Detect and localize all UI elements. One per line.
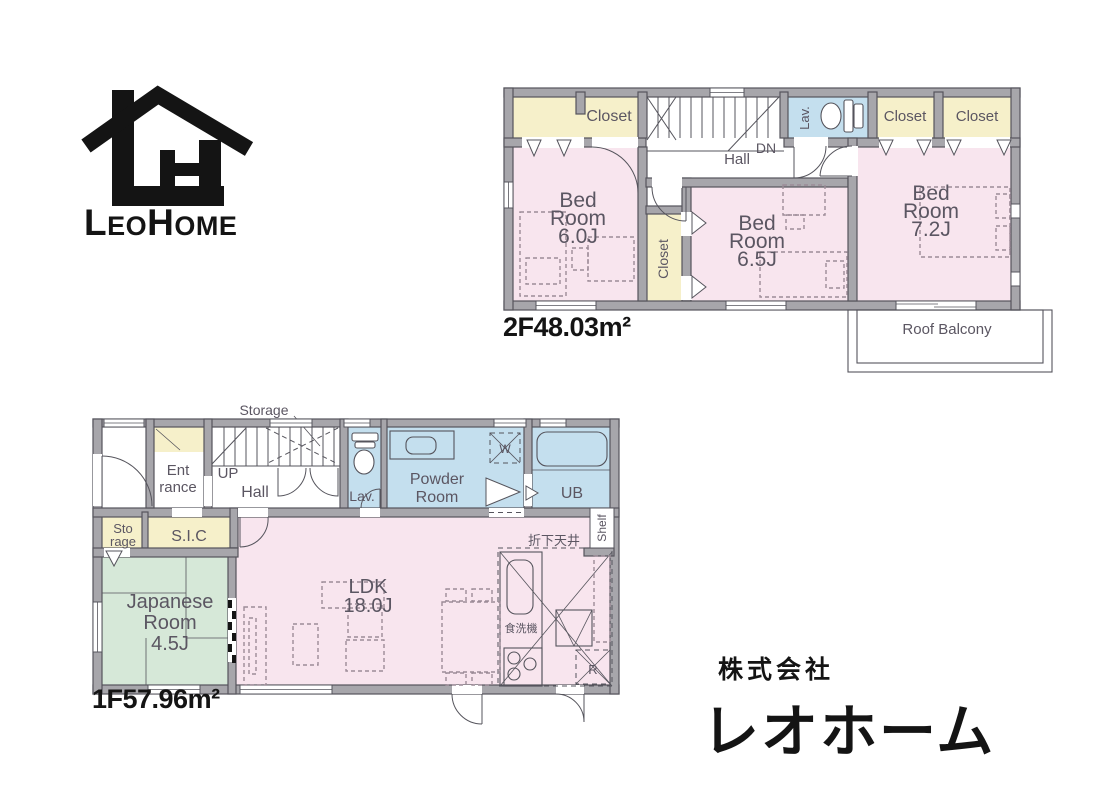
label-entrance-line1: Ent [167,462,190,479]
label-ldk-line2: 18.0J [344,595,393,617]
label-powder-line1: Powder [410,471,465,488]
label-fridge: R [588,662,597,677]
label-hall-2f: Hall [724,151,750,168]
label-shelf: Shelf [595,514,609,542]
label-japanese-line3: 4.5J [151,633,189,655]
floor1-area-label: 1F57.96m² [92,684,220,715]
label-japanese-line2: Room [143,612,196,634]
roof-balcony [848,310,1052,372]
label-washer: W [499,442,511,456]
label-closet-c: Closet [956,108,999,125]
label-ub: UB [561,485,583,502]
wordmark-part-2: EO [107,213,147,240]
label-dishwasher: 食洗機 [505,621,538,635]
label-closet-b: Closet [884,108,927,125]
label-bed1-line3: 6.0J [558,225,598,248]
room-shoe-closet [154,427,204,452]
company-name: レオホーム [702,686,1072,768]
label-storage-stairs: Storage [239,402,288,418]
label-up: UP [218,465,239,482]
label-bed2-line3: 6.5J [737,248,777,271]
leohome-house-logo-icon [86,90,249,206]
leohome-wordmark: LEOHOME [84,204,237,241]
label-lowered-ceiling: 折下天井 [528,533,580,548]
stairs-1f [212,416,340,496]
label-hall-1f: Hall [241,484,269,501]
floorplan-page: Closet Lav. Closet Closet DN Hall Bed Ro… [0,0,1120,796]
label-bed3-line3: 7.2J [911,218,951,241]
wordmark-part-4: OME [174,213,237,240]
company-logo: 株式会社 レオホーム [702,650,1072,768]
floor1-plan: Storage Ent rance UP Hall Lav. Powder Ro… [93,402,619,724]
label-sic: S.I.C [171,528,207,545]
company-prefix: 株式会社 [718,650,1072,686]
label-powder-line2: Room [416,489,459,506]
label-storage-small-line2: rage [110,534,136,549]
label-japanese-line1: Japanese [127,591,214,613]
label-closet-d: Closet [655,239,671,279]
label-dn: DN [756,140,776,156]
label-lav-2f: Lav. [797,106,812,130]
wordmark-part-3: H [147,204,174,241]
label-entrance-line2: rance [159,479,197,496]
label-lav-1f: Lav. [349,488,374,504]
floor2-area-label: 2F48.03m² [503,312,631,343]
label-roof-balcony: Roof Balcony [902,321,992,338]
wordmark-part-1: L [84,204,107,241]
label-closet-a: Closet [586,108,632,125]
